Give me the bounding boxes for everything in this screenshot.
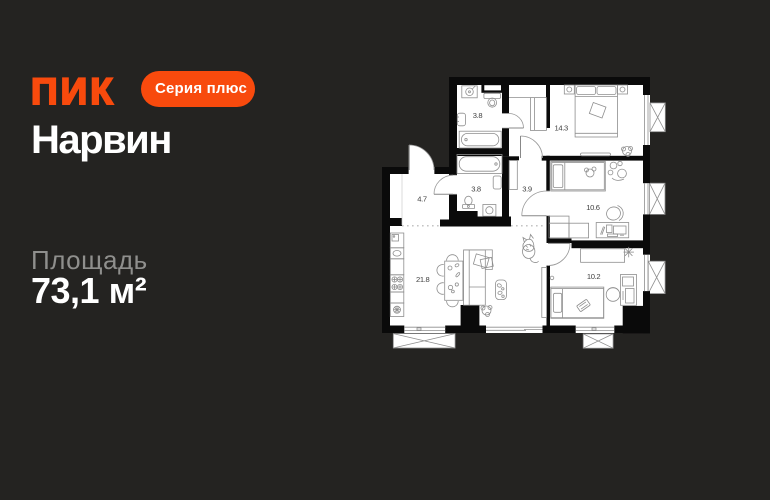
- svg-text:4.7: 4.7: [417, 195, 427, 204]
- svg-text:10.6: 10.6: [586, 203, 600, 212]
- svg-text:10.2: 10.2: [587, 272, 601, 281]
- svg-text:3.9: 3.9: [522, 185, 532, 194]
- svg-text:3.8: 3.8: [471, 185, 481, 194]
- svg-text:3.8: 3.8: [473, 111, 483, 120]
- svg-text:21.8: 21.8: [416, 275, 430, 284]
- svg-text:14.3: 14.3: [555, 124, 569, 133]
